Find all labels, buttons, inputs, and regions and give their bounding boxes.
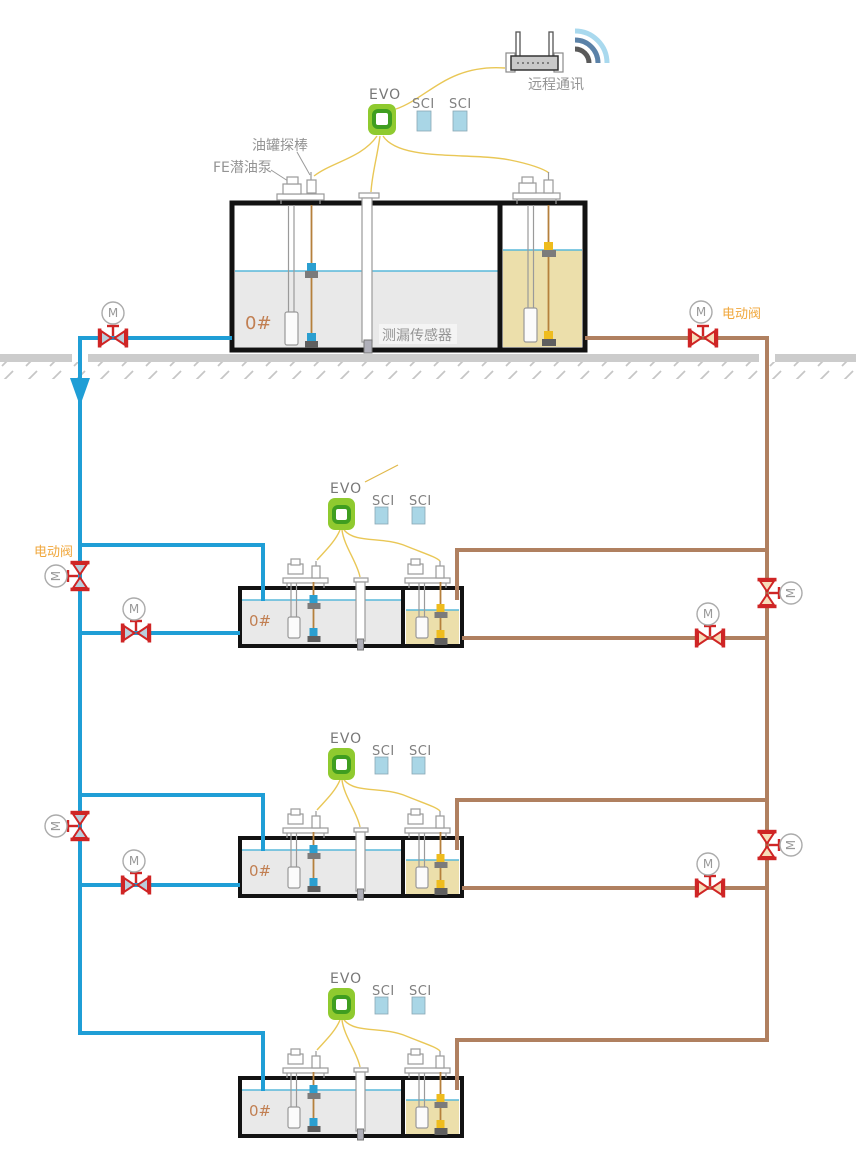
evo-label: EVO	[330, 481, 362, 497]
probe-float	[307, 333, 316, 341]
motor-letter: M	[703, 607, 713, 621]
motor-letter: M	[108, 306, 118, 320]
evo-label: EVO	[330, 971, 362, 987]
wifi-signal-icon	[575, 31, 607, 63]
motor-valve-main-left: M	[98, 302, 128, 348]
blue-pipe-branch-3	[80, 795, 263, 851]
leak-sensor-wire	[371, 136, 380, 192]
evo-label: EVO	[369, 87, 401, 103]
leak-sensor-tube	[362, 198, 372, 342]
pump-motor-icon	[283, 184, 301, 194]
probe-float	[544, 242, 553, 250]
probe-collar	[305, 271, 318, 278]
submersible-pump-icon	[524, 308, 537, 342]
probe-base	[305, 341, 318, 348]
flow-arrow-icon	[70, 378, 90, 406]
brown-piping	[457, 338, 767, 1090]
motor-valve-fill-3-left: M	[121, 850, 151, 895]
sci-label: SCI	[449, 97, 472, 112]
motor-letter: M	[784, 588, 798, 598]
fe-pump-label: FE潜油泵	[213, 160, 272, 176]
sci-label: SCI	[372, 744, 395, 759]
electric-valve-label: 电动阀	[34, 545, 73, 560]
brown-pipe-main	[457, 338, 767, 1090]
motor-valve-fill-2-left: M	[121, 598, 151, 643]
leak-tube-flange	[359, 193, 379, 198]
sci-label: SCI	[372, 494, 395, 509]
remote-comm-label: 远程通讯	[528, 77, 584, 93]
probe-wire	[314, 136, 377, 176]
main-tank-group: EVO SCI SCI 油罐探棒 FE潜油泵 测漏	[213, 68, 585, 353]
leader-line	[365, 465, 398, 482]
pump-motor-cap	[522, 177, 533, 183]
motor-letter: M	[49, 821, 63, 831]
diagram-canvas: 远程通讯 EVO SCI SCI 油罐探棒 FE潜油泵	[0, 0, 856, 1154]
submersible-pump-icon	[285, 312, 298, 345]
gasoline-liquid	[503, 250, 582, 347]
station-2-group: EVO SCI SCI 0#	[240, 465, 462, 650]
station-3-group: EVO SCI SCI 0#	[240, 731, 462, 900]
sci-label: SCI	[409, 984, 432, 999]
motor-valve-main-right: M 电动阀	[688, 301, 761, 348]
motor-letter: M	[696, 305, 706, 319]
sci-module-icon	[417, 111, 431, 131]
small-tank-station	[240, 988, 462, 1140]
probe-float	[307, 263, 316, 271]
blue-pipe-main	[80, 338, 263, 1091]
blue-pipe-branch-2	[80, 545, 263, 601]
ground	[0, 353, 856, 379]
motor-letter: M	[703, 857, 713, 871]
ground-line	[0, 354, 856, 362]
sci-label: SCI	[372, 984, 395, 999]
motor-letter: M	[784, 840, 798, 850]
probe-head-icon	[307, 180, 316, 193]
fuel-grade-label: 0#	[249, 612, 271, 630]
motor-valve-fill-3-right: M	[695, 853, 725, 898]
probe-collar	[542, 250, 556, 257]
fuel-station-piping-diagram: 远程通讯 EVO SCI SCI 油罐探棒 FE潜油泵	[0, 0, 856, 1154]
manhole-flange	[277, 194, 324, 200]
brown-pipe-branch-2	[457, 550, 767, 600]
probe-head-icon	[544, 180, 553, 193]
electric-valve-label: 电动阀	[722, 307, 761, 322]
motor-valve-riser-2-right: M	[758, 578, 803, 608]
router: 远程通讯	[506, 31, 607, 93]
fuel-grade-label: 0#	[245, 313, 272, 334]
station-4-group: EVO SCI SCI 0#	[240, 971, 462, 1140]
evo-screen-icon	[374, 111, 390, 127]
motor-valve-fill-2-right: M	[695, 603, 725, 648]
sci-label: SCI	[412, 97, 435, 112]
probe-base	[542, 339, 556, 346]
sci-label: SCI	[409, 494, 432, 509]
antenna-icon	[549, 32, 553, 58]
motor-letter: M	[129, 602, 139, 616]
pump-motor-icon	[519, 183, 536, 193]
tank-probe-label: 油罐探棒	[252, 138, 308, 154]
sci-module-icon	[453, 111, 467, 131]
motor-letter: M	[129, 854, 139, 868]
small-tank-station	[240, 748, 462, 900]
manhole-flange	[513, 193, 560, 199]
antenna-icon	[516, 32, 520, 58]
motor-valve-riser-3-right: M	[758, 830, 803, 860]
fuel-grade-label: 0#	[249, 862, 271, 880]
evo-label: EVO	[330, 731, 362, 747]
fuel-grade-label: 0#	[249, 1102, 271, 1120]
leak-sensor-label: 测漏传感器	[382, 327, 452, 344]
motor-valve-riser-3-left: M	[45, 811, 90, 841]
ground-hatch	[0, 362, 856, 379]
pump-leader-line	[271, 170, 288, 181]
probe-leader-line	[297, 152, 310, 175]
blue-piping	[70, 338, 263, 1091]
brown-pipe-branch-3	[457, 800, 767, 850]
small-tank-station	[240, 498, 462, 650]
sci-label: SCI	[409, 744, 432, 759]
probe-float	[544, 331, 553, 339]
pump-motor-cap	[287, 177, 298, 184]
right-probe-wire	[383, 136, 549, 173]
leak-sensor-tip	[364, 340, 372, 353]
motor-letter: M	[49, 571, 63, 581]
